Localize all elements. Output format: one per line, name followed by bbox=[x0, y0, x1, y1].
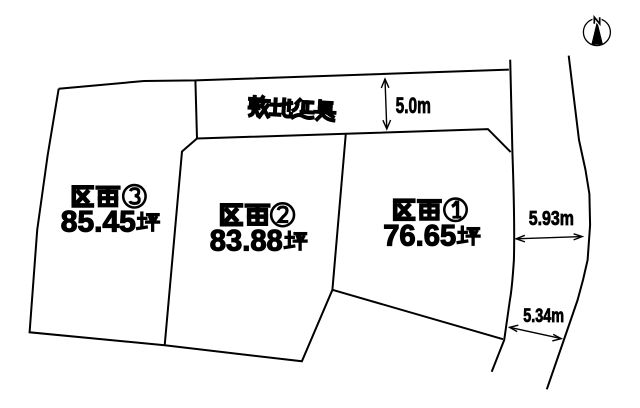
svg-text:5.93m: 5.93m bbox=[529, 207, 574, 230]
svg-text:76.65: 76.65 bbox=[383, 220, 456, 253]
svg-text:5.34m: 5.34m bbox=[523, 305, 564, 327]
svg-text:85.45: 85.45 bbox=[61, 206, 136, 239]
svg-text:83.88: 83.88 bbox=[210, 225, 283, 258]
svg-text:5.0m: 5.0m bbox=[396, 93, 431, 118]
